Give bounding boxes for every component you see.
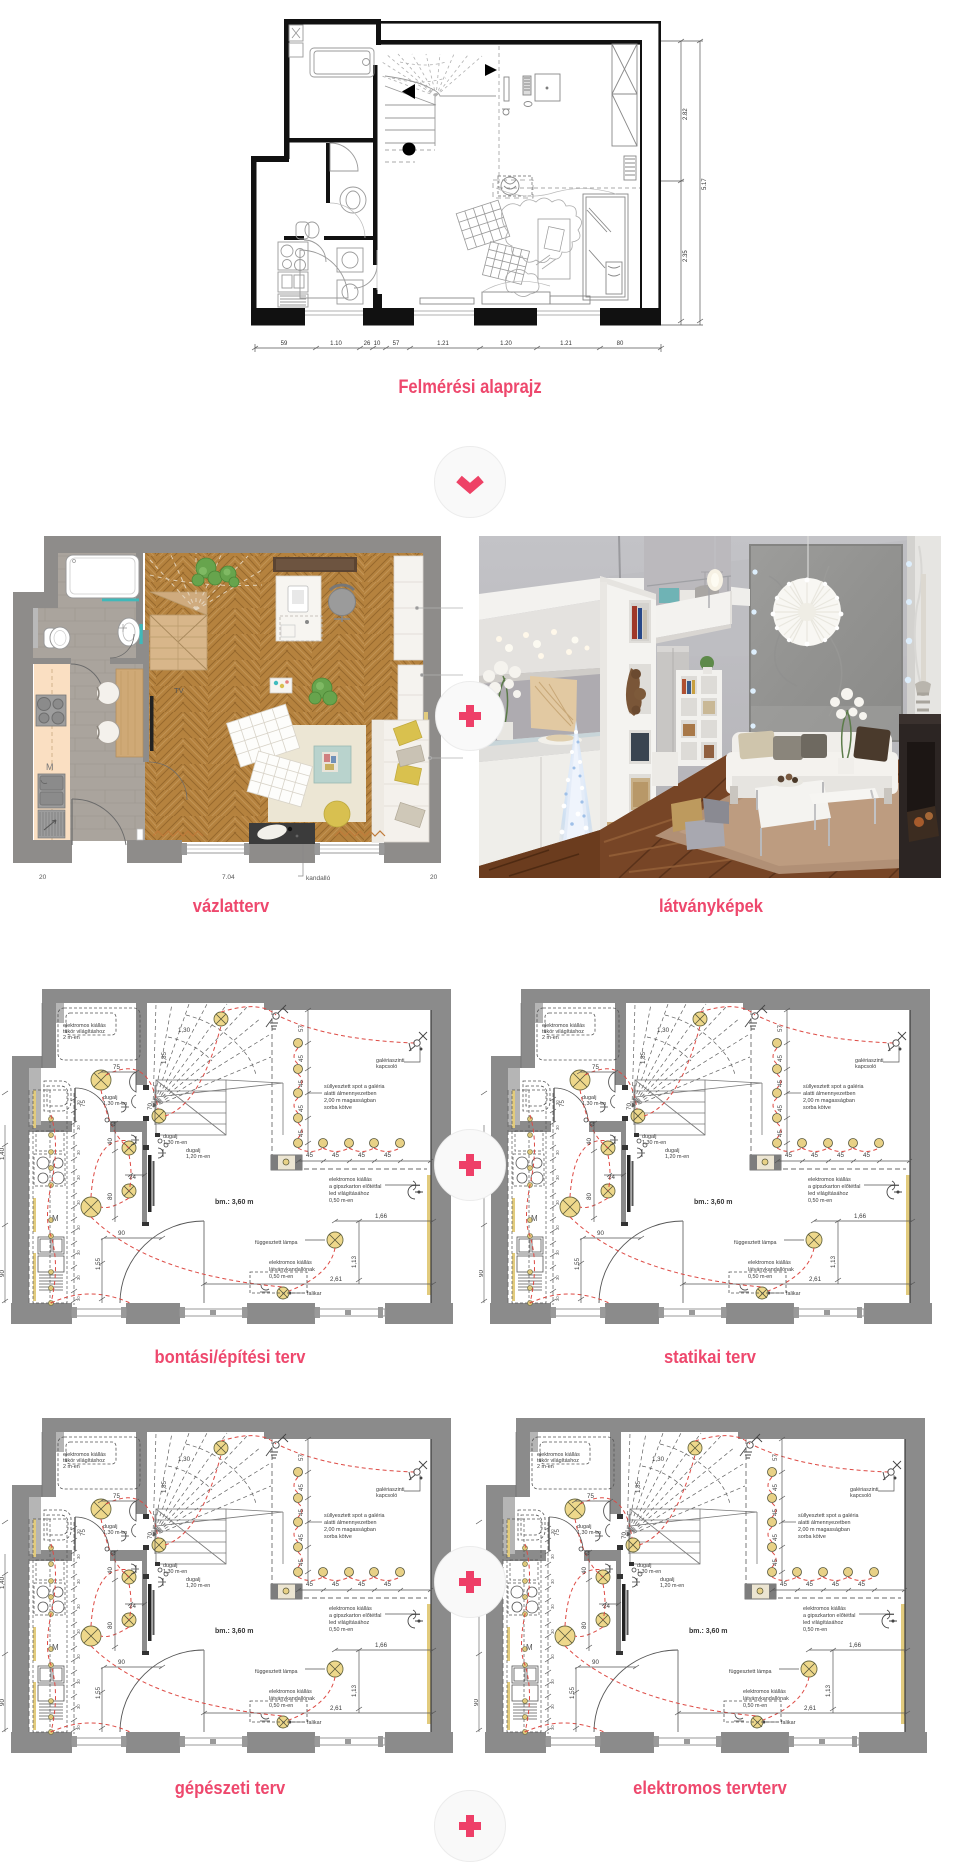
svg-text:20: 20: [430, 874, 438, 881]
svg-text:10: 10: [374, 341, 381, 347]
svg-text:20: 20: [39, 874, 47, 881]
svg-text:7.04: 7.04: [222, 874, 235, 881]
svg-text:1.10: 1.10: [330, 341, 342, 347]
svg-text:26: 26: [364, 341, 371, 347]
svg-text:1.21: 1.21: [437, 341, 449, 347]
svg-text:kandalló: kandalló: [306, 875, 331, 882]
svg-text:TV: TV: [174, 686, 184, 695]
svg-text:1.20: 1.20: [500, 341, 512, 347]
svg-text:5.17: 5.17: [702, 178, 708, 190]
svg-text:80: 80: [617, 341, 624, 347]
svg-text:M: M: [46, 762, 54, 772]
svg-text:59: 59: [281, 341, 288, 347]
svg-text:1.21: 1.21: [560, 341, 572, 347]
svg-text:2.35: 2.35: [683, 250, 689, 262]
svg-text:57: 57: [393, 341, 400, 347]
svg-text:2.82: 2.82: [683, 108, 689, 120]
